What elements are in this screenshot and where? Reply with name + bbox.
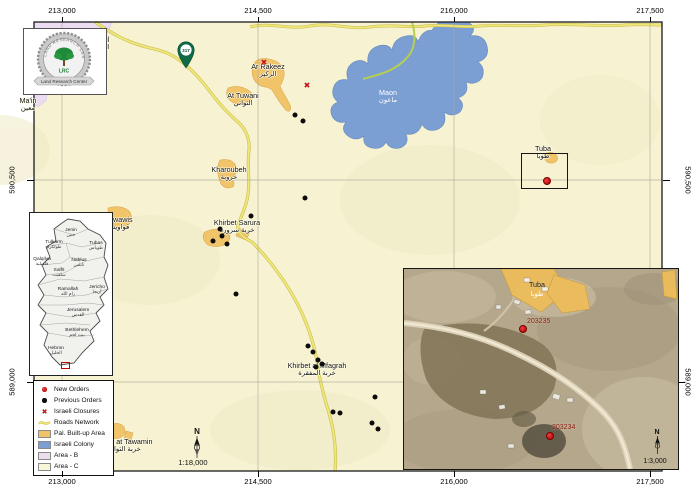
place-name-ar: الركيز <box>251 71 285 79</box>
previous-order-marker <box>370 421 375 426</box>
color-swatch <box>38 452 51 460</box>
place-name-ar: التواني <box>227 100 259 108</box>
legend-label: Israeli Closures <box>54 408 99 415</box>
district-name-ar: نابلس <box>71 263 86 268</box>
red-dot-icon <box>42 387 47 392</box>
legend-symbol-swatch <box>38 463 51 471</box>
place-name-en: Maon <box>379 89 397 97</box>
color-swatch <box>38 441 51 449</box>
district-label-jerusalem: Jerusalemالقدس <box>67 308 90 318</box>
previous-order-marker <box>331 410 336 415</box>
legend-symbol-red-dot <box>38 387 51 392</box>
x-coordinate-label-bottom: 217,500 <box>636 477 663 486</box>
place-label-ma-in: Ma'inمعين <box>20 97 37 113</box>
y-tick-right <box>663 180 670 181</box>
legend-item-israeli-colony: Israeli Colony <box>34 440 113 449</box>
legend-symbol-red-x: ✖ <box>38 408 51 416</box>
previous-order-marker <box>306 344 311 349</box>
x-coordinate-label-top: 213,000 <box>48 6 75 15</box>
x-tick-bottom <box>258 471 259 477</box>
x-coordinate-label-bottom: 213,000 <box>48 477 75 486</box>
place-label-kharoubeh: Kharoubehخروبة <box>211 166 246 182</box>
legend-label: Previous Orders <box>54 397 102 404</box>
previous-order-marker <box>293 113 298 118</box>
y-tick-left <box>27 180 34 181</box>
x-tick-bottom <box>454 471 455 477</box>
north-arrow-inset: N <box>649 429 665 454</box>
place-name-ar: خربة المفقرة <box>288 370 347 378</box>
color-swatch <box>38 463 51 471</box>
y-coordinate-label-right: 590,500 <box>684 166 693 193</box>
legend-symbol-black-dot <box>38 398 51 403</box>
previous-order-marker <box>376 427 381 432</box>
previous-order-marker <box>314 365 319 370</box>
color-swatch <box>38 430 51 438</box>
district-label-tubas: Tubasطوباس <box>89 241 103 251</box>
x-tick-top <box>258 17 259 23</box>
legend-symbol-swatch <box>38 452 51 460</box>
legend-label: Pal. Built-up Area <box>54 430 105 437</box>
district-name-ar: بيت لحم <box>65 333 88 338</box>
x-tick-bottom <box>62 471 63 477</box>
legend-label: Israeli Colony <box>54 441 94 448</box>
district-label-bethlehem: Bethlehemبيت لحم <box>65 328 88 338</box>
black-dot-icon <box>42 398 47 403</box>
place-name-ar: خروبة <box>211 174 246 182</box>
red-x-icon: ✖ <box>42 408 48 416</box>
north-label-main: N <box>188 427 206 436</box>
place-label-ar-rakeez: Ar Rakeezالركيز <box>251 63 285 79</box>
y-coordinate-label-left: 589,000 <box>8 368 17 395</box>
legend-item-previous-orders: Previous Orders <box>34 396 113 405</box>
legend-label: Area - C <box>54 463 79 470</box>
logo-abbr: LRC <box>59 69 70 75</box>
district-name-ar: طوباس <box>89 246 103 251</box>
route-number: 317 <box>182 48 190 53</box>
place-name-ar: ماعون <box>379 97 397 105</box>
previous-order-marker <box>338 411 343 416</box>
place-name-ar: معين <box>20 105 37 113</box>
previous-order-marker <box>301 119 306 124</box>
y-tick-right <box>678 382 685 383</box>
tuba-extent-rectangle <box>521 153 568 189</box>
y-coordinate-label-left: 590,500 <box>8 166 17 193</box>
legend-label: Area - B <box>54 452 78 459</box>
legend-symbol-swatch <box>38 430 51 438</box>
district-name-ar: جنين <box>65 233 77 238</box>
legend-item-area-b: Area - B <box>34 451 113 460</box>
district-name-ar: الخليل <box>48 351 64 356</box>
previous-order-marker <box>211 239 216 244</box>
scale-text-inset: 1:3,000 <box>643 458 666 465</box>
place-label-at-tuwani: At Tuwaniالتواني <box>227 92 259 108</box>
previous-order-marker <box>311 350 316 355</box>
legend-label: Roads Network <box>54 419 99 426</box>
legend-item-pal-built-up-area: Pal. Built-up Area <box>34 429 113 438</box>
previous-order-marker <box>320 362 325 367</box>
previous-order-marker <box>303 196 308 201</box>
previous-order-marker <box>225 242 230 247</box>
district-name-ar: قلقيلية <box>33 262 51 267</box>
legend-symbol-road <box>38 419 51 427</box>
road-line-icon <box>38 419 51 427</box>
israeli-closure-marker: ✖ <box>304 82 311 90</box>
place-name-en: Ma'in <box>20 97 37 105</box>
place-name-en: Kharoubeh <box>211 166 246 174</box>
x-tick-top <box>454 17 455 23</box>
previous-order-marker <box>373 395 378 400</box>
previous-order-marker <box>249 214 254 219</box>
scale-text-main: 1:18,000 <box>178 458 207 467</box>
x-coordinate-label-bottom: 214,500 <box>244 477 271 486</box>
previous-order-marker <box>220 234 225 239</box>
legend-item-roads-network: Roads Network <box>34 418 113 427</box>
district-label-salfit: Salfitسلفيت <box>52 268 65 278</box>
legend-label: New Orders <box>54 386 89 393</box>
x-coordinate-label-bottom: 216,000 <box>440 477 467 486</box>
x-tick-top <box>62 17 63 23</box>
logo-name: Land Research Center <box>41 79 88 84</box>
district-label-ramallah: Ramallahرام الله <box>58 287 79 297</box>
x-coordinate-label-top: 217,500 <box>636 6 663 15</box>
x-coordinate-label-top: 214,500 <box>244 6 271 15</box>
district-label-jericho: Jerichoأريحا <box>89 285 105 295</box>
district-label-jenin: Jeninجنين <box>65 228 77 238</box>
west-bank-overview-inset: JeninجنينTulkarmطولكرمTubasطوباسQalqilya… <box>29 212 113 376</box>
district-label-hebron: Hebronالخليل <box>48 346 64 356</box>
lrc-logo: LAND RESEARCH CENTER LRC Land Research C… <box>23 28 107 95</box>
legend-item-area-c: Area - C <box>34 462 113 471</box>
north-arrow-main: N <box>188 427 206 458</box>
district-name-ar: القدس <box>67 313 90 318</box>
district-label-nablus: Nablusنابلس <box>71 258 86 268</box>
place-label-maon: Maonماعون <box>379 89 397 105</box>
route-317-marker: 317 <box>177 41 195 74</box>
district-name-ar: سلفيت <box>52 273 65 278</box>
satellite-inset <box>403 268 679 470</box>
legend: New OrdersPrevious Orders✖Israeli Closur… <box>33 380 114 476</box>
previous-order-marker <box>234 292 239 297</box>
y-tick-left <box>27 382 34 383</box>
x-tick-top <box>650 17 651 23</box>
north-label-inset: N <box>649 429 665 436</box>
previous-order-marker <box>218 227 223 232</box>
x-coordinate-label-top: 216,000 <box>440 6 467 15</box>
district-name-ar: رام الله <box>58 292 79 297</box>
district-label-tulkarm: Tulkarmطولكرم <box>45 240 62 250</box>
x-tick-bottom <box>650 471 651 477</box>
district-label-qalqilya: Qalqilyaقلقيلية <box>33 257 51 267</box>
legend-item-israeli-closures: ✖Israeli Closures <box>34 407 113 416</box>
district-name-ar: أريحا <box>89 290 105 295</box>
legend-symbol-swatch <box>38 441 51 449</box>
location-indicator-rect <box>61 362 70 369</box>
israeli-closure-marker: ✖ <box>261 59 268 67</box>
district-name-ar: طولكرم <box>45 245 62 250</box>
legend-item-new-orders: New Orders <box>34 385 113 394</box>
